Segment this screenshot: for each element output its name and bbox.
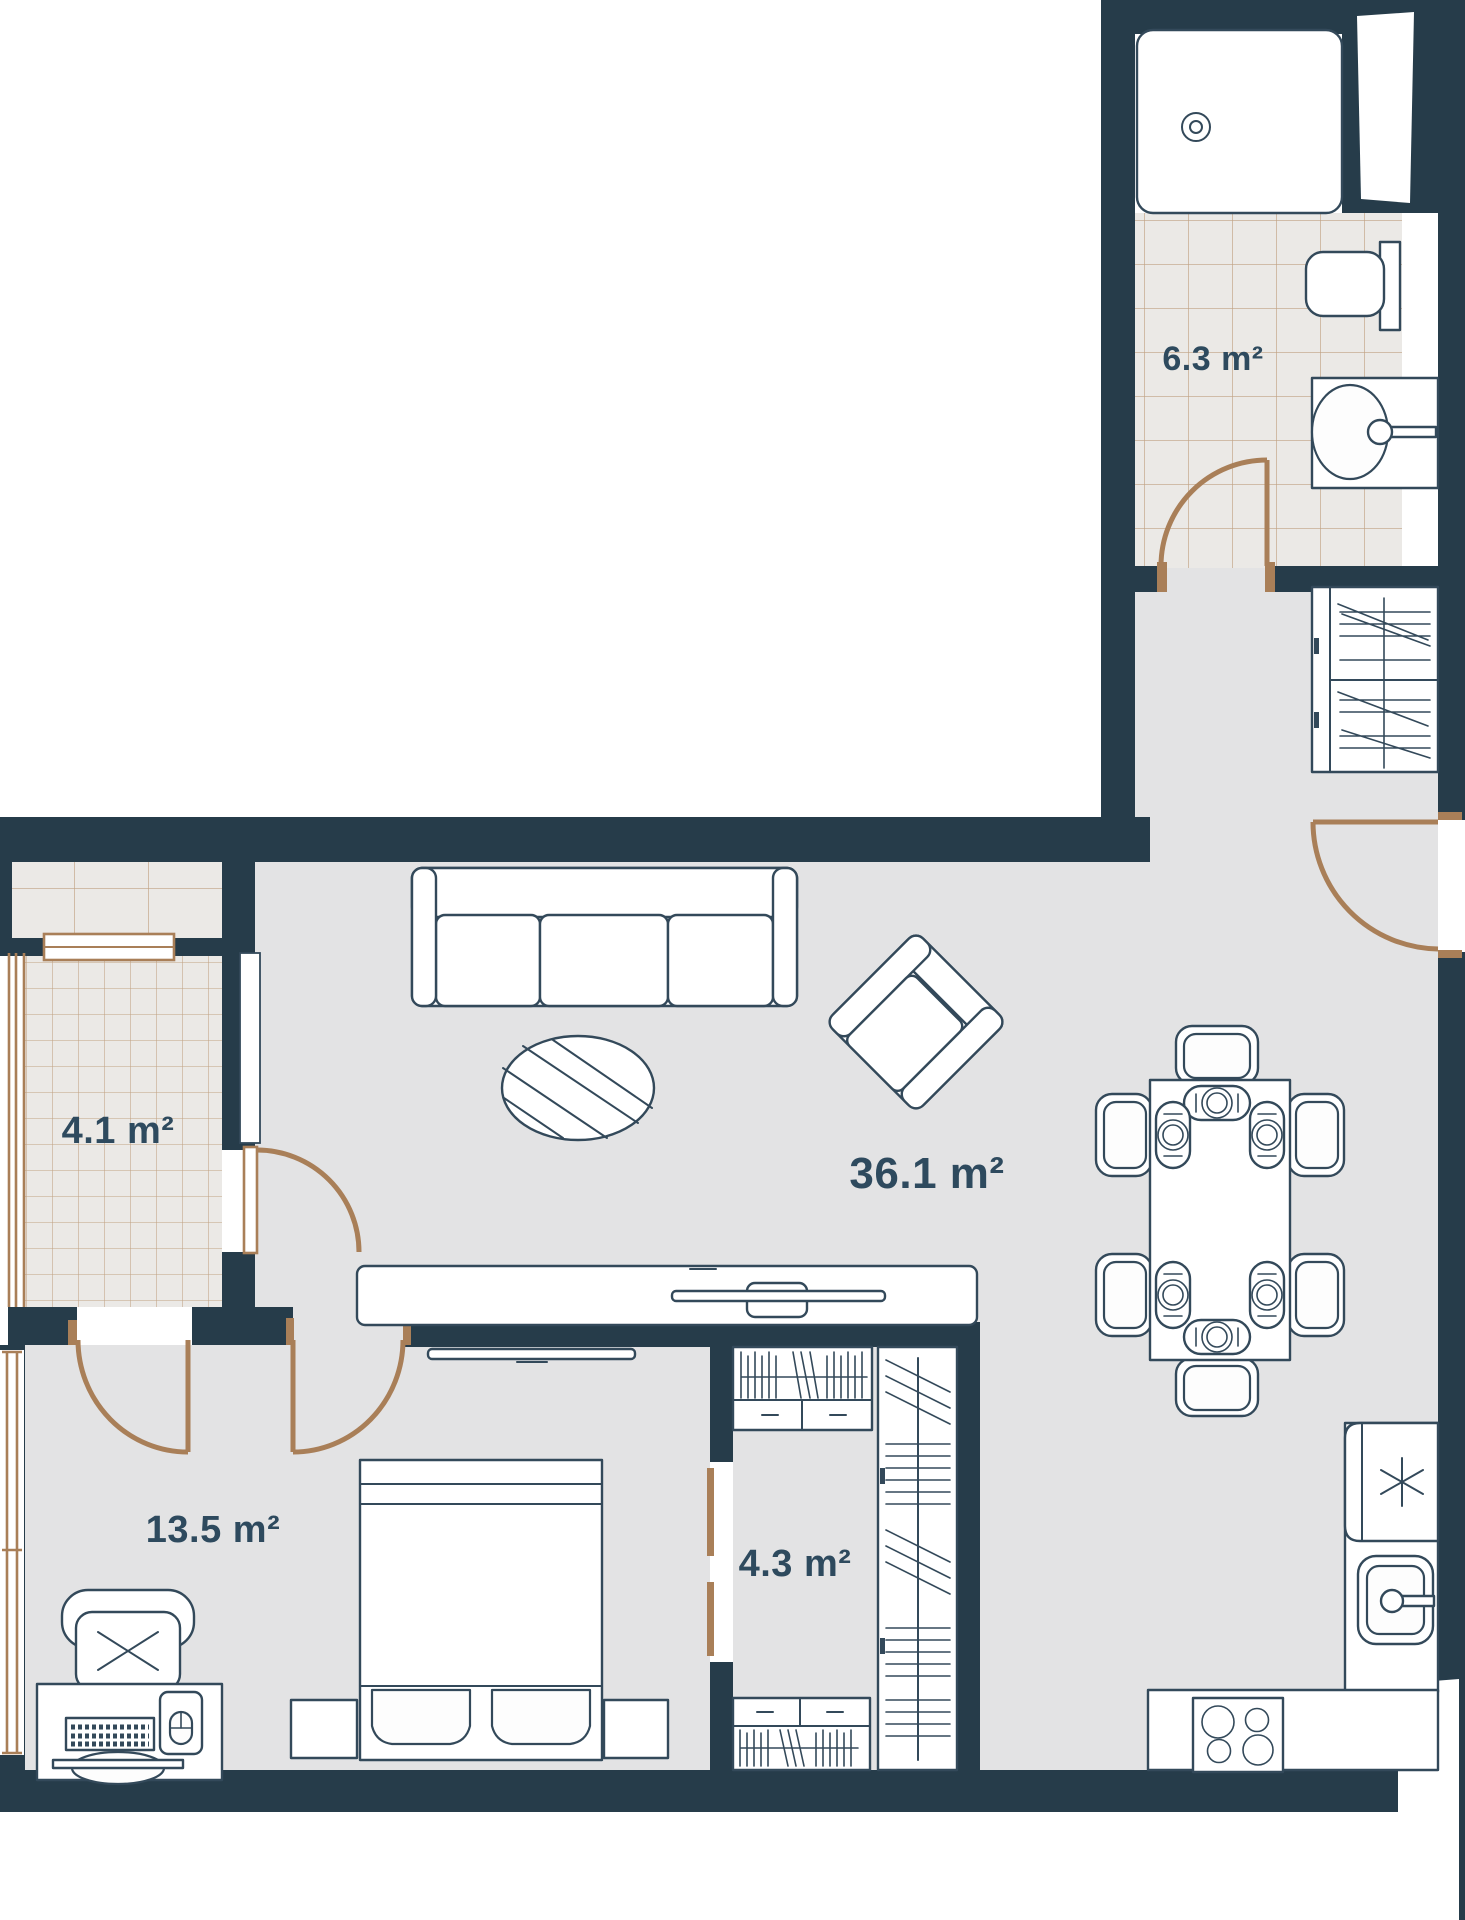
room-label-bathroom: 6.3 m² bbox=[1162, 340, 1263, 378]
hallway-wardrobe bbox=[1312, 587, 1438, 772]
wall-pier-between-doors bbox=[192, 1307, 293, 1345]
wall-bathroom-left bbox=[1101, 0, 1135, 860]
office-chair bbox=[62, 1590, 194, 1690]
closet-bookshelf-bottom bbox=[733, 1698, 870, 1770]
handle-icon bbox=[880, 1468, 885, 1484]
bedroom-window bbox=[0, 1350, 24, 1755]
closet-wardrobe bbox=[878, 1347, 957, 1770]
pillow bbox=[492, 1690, 590, 1744]
wall-living-top bbox=[0, 817, 1150, 862]
mouse-icon bbox=[170, 1712, 192, 1744]
bathtub bbox=[1137, 30, 1342, 213]
floor-plan-page: 6.3 m² 4.1 m² 36.1 m² 13.5 m² 4.3 m² bbox=[0, 0, 1465, 1920]
wall-closet-stub-bottom bbox=[710, 1662, 733, 1770]
nightstand-left bbox=[291, 1700, 357, 1758]
nightstand-right bbox=[604, 1700, 668, 1758]
double-bed bbox=[360, 1460, 602, 1760]
balcony-partition-window bbox=[44, 934, 174, 960]
room-label-closet: 4.3 m² bbox=[739, 1543, 852, 1585]
entrance-opening bbox=[1438, 820, 1465, 952]
room-label-bedroom: 13.5 m² bbox=[146, 1509, 280, 1551]
bathroom-sink bbox=[1312, 378, 1438, 488]
balcony-glazing bbox=[9, 953, 24, 1307]
living-balcony-window bbox=[240, 953, 260, 1143]
desk bbox=[37, 1684, 222, 1784]
bathroom-window bbox=[1357, 12, 1414, 203]
kitchen-sink bbox=[1358, 1556, 1434, 1644]
sofa bbox=[412, 868, 797, 1006]
balcony-upper-tile-grid bbox=[12, 858, 222, 938]
toilet bbox=[1306, 242, 1400, 330]
refrigerator bbox=[1345, 1423, 1438, 1541]
kitchen-floor-strip bbox=[980, 1690, 1148, 1770]
bedroom-wall-tv bbox=[428, 1349, 635, 1362]
handle-icon bbox=[1314, 638, 1319, 654]
wall-balcony-bottom-left bbox=[8, 1307, 77, 1345]
pillow bbox=[372, 1690, 470, 1744]
handle-icon bbox=[1314, 712, 1319, 728]
handle-icon bbox=[880, 1638, 885, 1654]
kitchen-counter-bottom bbox=[1148, 1690, 1438, 1770]
bathroom-door-threshold bbox=[1167, 566, 1265, 592]
floor-plan-svg: 6.3 m² 4.1 m² 36.1 m² 13.5 m² 4.3 m² bbox=[0, 0, 1465, 1920]
wall-closet-stub-top bbox=[710, 1325, 733, 1462]
wall-right-outer bbox=[1438, 213, 1465, 1920]
wall-balcony-living-lower bbox=[222, 1252, 255, 1310]
balcony-bedroom-threshold bbox=[77, 1307, 188, 1345]
wall-closet-dining bbox=[957, 1325, 980, 1770]
cooktop bbox=[1193, 1698, 1283, 1772]
room-label-living-dining: 36.1 m² bbox=[849, 1149, 1004, 1198]
room-label-balcony: 4.1 m² bbox=[62, 1110, 175, 1152]
tv-console bbox=[357, 1266, 977, 1325]
coffee-table bbox=[502, 1036, 654, 1140]
closet-bookshelf-top bbox=[733, 1347, 872, 1430]
